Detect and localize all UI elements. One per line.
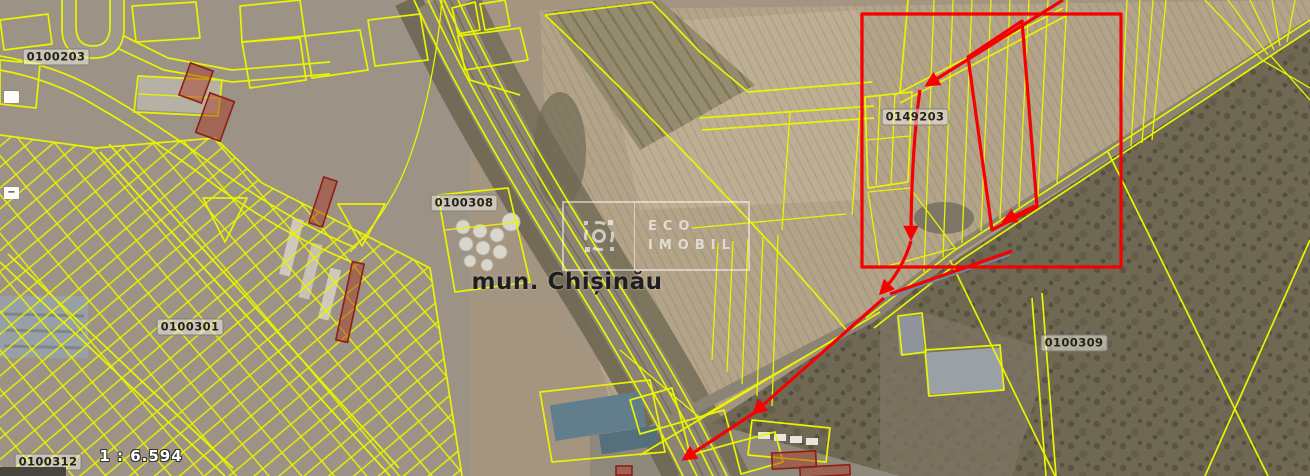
parcel-code-label: 0149203 bbox=[882, 109, 949, 126]
parcel-code-label: 0100308 bbox=[431, 195, 498, 212]
map-viewport[interactable]: 0100203 0100308 0149203 0100301 0100309 … bbox=[0, 0, 1310, 476]
parcel-code-label: 0100203 bbox=[23, 49, 90, 66]
map-edge-label-box: − bbox=[4, 187, 19, 199]
parcel-code-label: 0100309 bbox=[1041, 335, 1108, 352]
watermark-line1: ECO bbox=[648, 217, 748, 236]
map-edge-label-box bbox=[4, 91, 19, 103]
eco-imobil-logo-icon bbox=[564, 203, 635, 269]
map-scale-label: 1 : 6.594 bbox=[99, 447, 182, 465]
watermark-text: ECO IMOBIL bbox=[635, 203, 748, 269]
attribution-bar-fragment bbox=[0, 467, 66, 476]
municipality-label: mun. Chișinău bbox=[472, 269, 663, 295]
watermark: ECO IMOBIL bbox=[562, 201, 750, 271]
parcel-code-label: 0100301 bbox=[157, 319, 224, 336]
watermark-line2: IMOBIL bbox=[648, 236, 748, 255]
